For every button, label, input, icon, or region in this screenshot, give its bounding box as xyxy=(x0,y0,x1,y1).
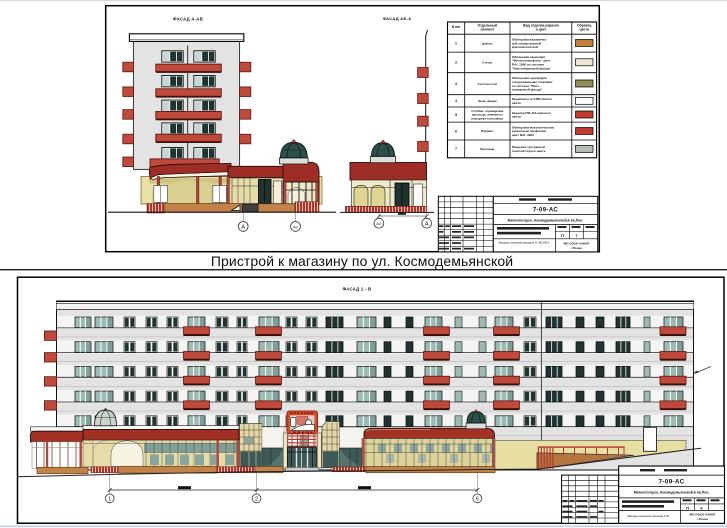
svg-text:цвета: цвета xyxy=(512,115,521,119)
svg-text:Крыльца: Крыльца xyxy=(480,147,494,151)
svg-text:цвета: цвета xyxy=(512,101,521,105)
svg-text:Фасады. решения фасадов А; АБ;: Фасады. решения фасадов А; АБ;АБ-А xyxy=(499,241,550,245)
svg-text:7: 7 xyxy=(455,147,457,151)
svg-text:Магнитогорск, Космодемьянской,: Магнитогорск, Космодемьянской,6 кв.Лен. xyxy=(508,218,584,222)
svg-text:А: А xyxy=(241,225,245,231)
svg-text:6: 6 xyxy=(455,129,457,133)
svg-text:Участки стен: Участки стен xyxy=(477,82,497,86)
svg-text:МО ООСН ЧАКБР: МО ООСН ЧАКБР xyxy=(690,513,716,517)
svg-text:Пристрой к магазину по ул. Кос: Пристрой к магазину по ул. Космодемьянск… xyxy=(211,253,513,269)
svg-text:Цоколь: Цоколь xyxy=(482,41,493,45)
svg-text:2: 2 xyxy=(255,496,258,502)
svg-text:цвет RAL 3000: цвет RAL 3000 xyxy=(512,133,534,137)
svg-text:А/2: А/2 xyxy=(293,225,298,229)
svg-text:2: 2 xyxy=(455,61,457,65)
svg-text:элемент: элемент xyxy=(480,28,494,32)
svg-text:6: 6 xyxy=(476,496,479,502)
svg-text:Фасады.решение фасада 1-В: Фасады.решение фасада 1-В xyxy=(627,514,668,518)
svg-text:козырька и рекламы: козырька и рекламы xyxy=(471,117,503,121)
svg-text:цвета: цвета xyxy=(579,28,589,32)
svg-text:илируемый фасад": илируемый фасад" xyxy=(512,88,543,92)
svg-text:П: П xyxy=(686,505,689,510)
svg-text:1: 1 xyxy=(455,41,457,45)
svg-text:5: 5 xyxy=(455,113,457,117)
svg-text:Окна, двери: Окна, двери xyxy=(478,99,497,103)
svg-text:и цвет: и цвет xyxy=(536,28,547,32)
svg-text:г.Пенза: г.Пенза xyxy=(697,517,708,521)
svg-text:плиткой серого цвета: плиткой серого цвета xyxy=(512,149,546,153)
svg-text:7-09-АС: 7-09-АС xyxy=(659,478,685,485)
svg-text:МО ООСН ЧАКБР: МО ООСН ЧАКБР xyxy=(564,242,590,246)
svg-text:ФАСАД А-АБ: ФАСАД А-АБ xyxy=(173,17,203,22)
svg-text:ФАСАД 1 - В: ФАСАД 1 - В xyxy=(342,287,371,292)
svg-text:А/2: А/2 xyxy=(376,222,381,226)
svg-text:П: П xyxy=(561,233,564,238)
svg-text:Магнитогорск, Космодемьянской,: Магнитогорск, Космодемьянской,6 кв.Лен. xyxy=(634,491,710,495)
svg-text:ФАСАД АБ-А: ФАСАД АБ-А xyxy=(383,16,412,21)
svg-text:3: 3 xyxy=(455,82,457,86)
svg-text:красной плиткой: красной плиткой xyxy=(512,45,538,49)
svg-text:4: 4 xyxy=(455,99,457,103)
svg-text:Парапет: Парапет xyxy=(481,129,494,133)
svg-text:А: А xyxy=(425,221,429,227)
svg-text:N п/п: N п/п xyxy=(452,25,460,29)
svg-text:1: 1 xyxy=(108,496,111,502)
svg-text:г.Пенза: г.Пенза xyxy=(571,246,582,250)
svg-text:7-09-АС: 7-09-АС xyxy=(533,207,559,213)
svg-text:"Вентилируемый фасад": "Вентилируемый фасад" xyxy=(512,66,551,70)
svg-text:Стены: Стены xyxy=(482,61,492,65)
